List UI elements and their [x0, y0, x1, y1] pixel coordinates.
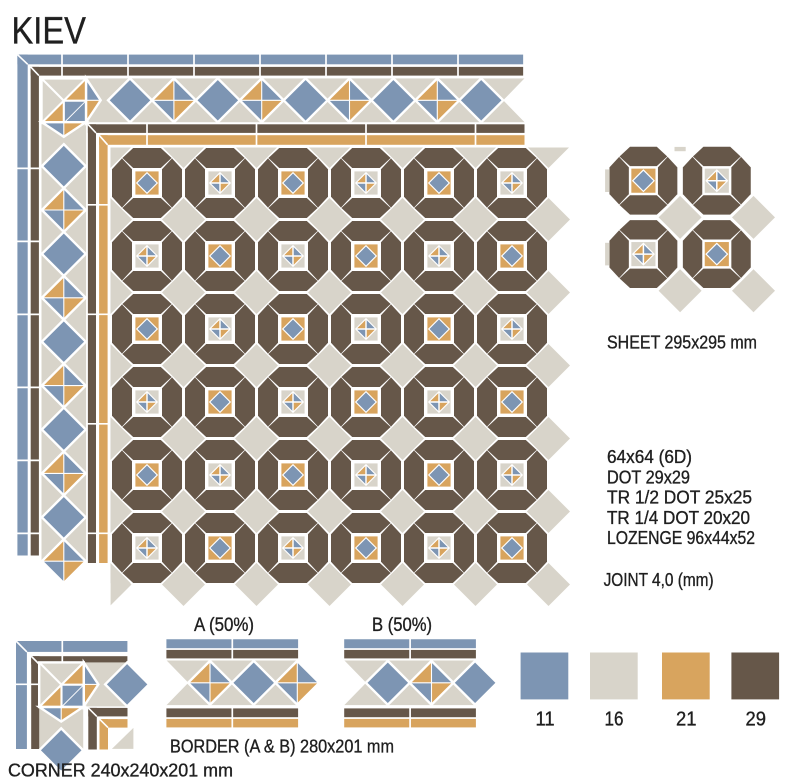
svg-text:A (50%): A (50%): [194, 615, 254, 636]
svg-text:TR 1/4 DOT 20x20: TR 1/4 DOT 20x20: [607, 507, 750, 528]
svg-text:21: 21: [676, 709, 697, 731]
svg-text:11: 11: [536, 709, 555, 731]
svg-text:64x64 (6D): 64x64 (6D): [607, 446, 692, 467]
svg-text:DOT 29x29: DOT 29x29: [607, 466, 690, 487]
svg-text:JOINT 4,0 (mm): JOINT 4,0 (mm): [604, 569, 714, 590]
svg-text:LOZENGE 96x44x52: LOZENGE 96x44x52: [607, 527, 755, 548]
svg-text:B (50%): B (50%): [372, 615, 432, 636]
svg-text:29: 29: [746, 709, 767, 731]
svg-text:TR 1/2 DOT 25x25: TR 1/2 DOT 25x25: [607, 487, 752, 508]
svg-text:BORDER (A & B) 280x201 mm: BORDER (A & B) 280x201 mm: [170, 736, 394, 757]
svg-text:KIEV: KIEV: [12, 11, 87, 53]
svg-text:SHEET 295x295 mm: SHEET 295x295 mm: [607, 332, 757, 353]
svg-text:CORNER 240x240x201 mm: CORNER 240x240x201 mm: [8, 760, 233, 781]
svg-text:16: 16: [605, 709, 624, 731]
